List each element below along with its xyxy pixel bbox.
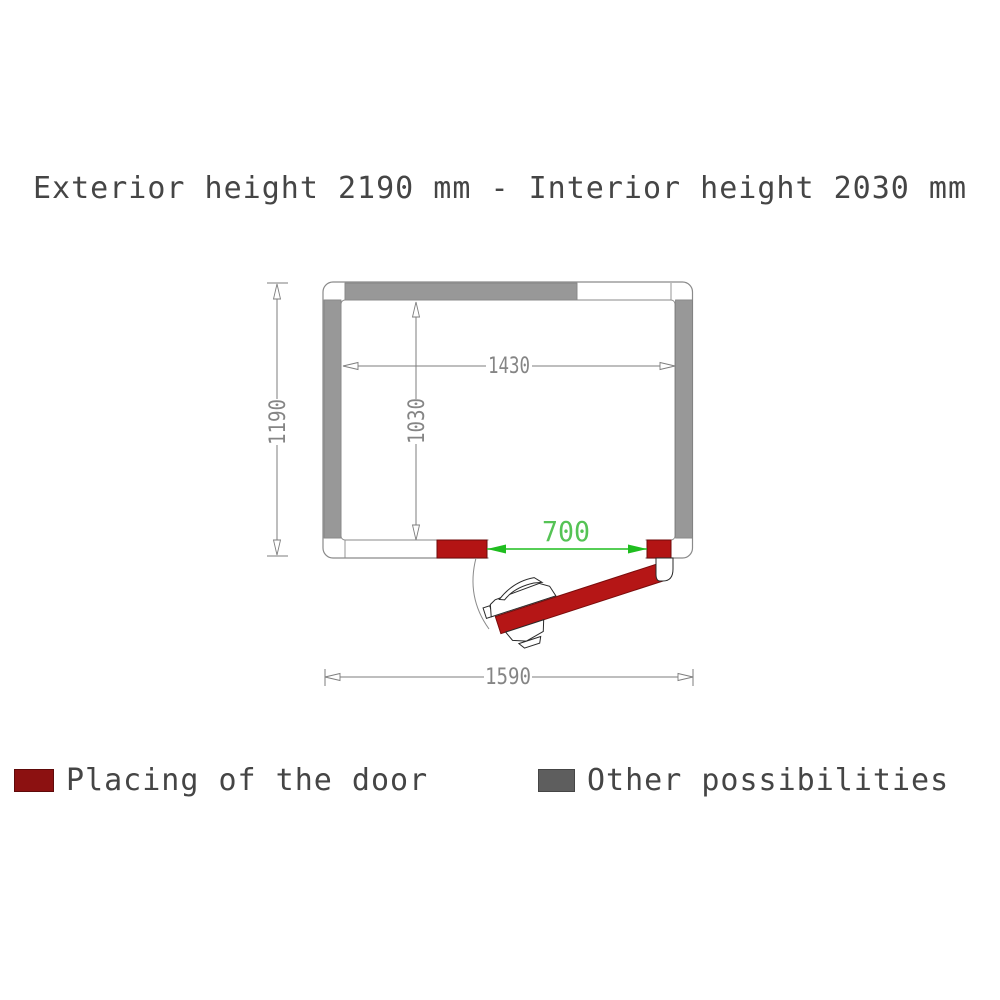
- dim-label-1030: 1030: [405, 398, 430, 444]
- room-outer-wall: [323, 282, 693, 558]
- arrow-right-icon: [678, 674, 693, 681]
- dim-label-700: 700: [542, 515, 590, 548]
- door-color-swatch: [14, 769, 54, 792]
- door-placement-segment-right: [647, 540, 671, 558]
- dim-label-1190: 1190: [266, 399, 291, 445]
- dimension-exterior-depth: 1190: [266, 283, 291, 556]
- door-hinge-detail: [656, 558, 673, 581]
- wall-right-gray: [676, 300, 693, 538]
- arrow-down-icon: [274, 540, 281, 555]
- floor-plan-svg: 1190 1430 1030 700: [0, 0, 1000, 1000]
- other-color-swatch: [538, 769, 575, 792]
- dim-label-1590: 1590: [485, 665, 531, 690]
- legend-item-door: Placing of the door: [14, 764, 428, 796]
- dimension-exterior-width: 1590: [325, 665, 693, 690]
- door-placement-segment-left: [437, 540, 487, 558]
- legend: Placing of the door Other possibilities: [0, 764, 1000, 796]
- arrow-up-icon: [274, 284, 281, 299]
- legend-label-door: Placing of the door: [66, 763, 428, 798]
- dim-label-1430: 1430: [488, 354, 530, 379]
- arrow-left-icon: [325, 674, 340, 681]
- legend-label-other: Other possibilities: [587, 763, 949, 798]
- wall-left-gray: [324, 300, 341, 538]
- wall-top-gray: [345, 283, 577, 300]
- legend-item-other: Other possibilities: [538, 764, 949, 796]
